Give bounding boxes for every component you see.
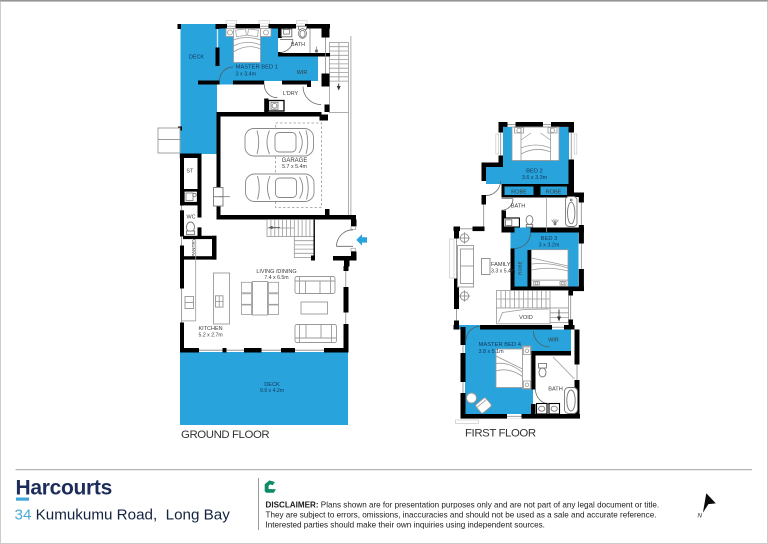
svg-text:L'DRY: L'DRY xyxy=(283,91,299,97)
svg-text:FAMILY: FAMILY xyxy=(491,262,511,268)
svg-text:BED 2: BED 2 xyxy=(526,168,543,174)
svg-text:ROBE: ROBE xyxy=(511,189,527,195)
svg-text:7.4 x 6.5m: 7.4 x 6.5m xyxy=(264,275,288,281)
svg-text:ROBE: ROBE xyxy=(546,189,562,195)
svg-text:3 x 3.4m: 3 x 3.4m xyxy=(236,71,257,77)
svg-text:N: N xyxy=(698,513,703,520)
svg-text:DECK: DECK xyxy=(189,55,204,61)
svg-text:3.8 x 5.1m: 3.8 x 5.1m xyxy=(479,349,505,355)
svg-text:GROUND FLOOR: GROUND FLOOR xyxy=(181,429,269,441)
svg-text:FIRST FLOOR: FIRST FLOOR xyxy=(465,428,536,440)
svg-text:3 x 3.2m: 3 x 3.2m xyxy=(539,242,560,248)
svg-text:5.2 x 2.7m: 5.2 x 2.7m xyxy=(199,332,223,338)
svg-text:BATH: BATH xyxy=(548,386,563,392)
svg-text:3.3 x 5.4m: 3.3 x 5.4m xyxy=(491,269,515,275)
svg-text:PANTRY: PANTRY xyxy=(191,237,197,257)
svg-text:MASTER BED 4: MASTER BED 4 xyxy=(479,342,522,348)
svg-text:BED 3: BED 3 xyxy=(541,236,558,242)
svg-text:They are subject to errors, om: They are subject to errors, omissions, i… xyxy=(266,511,657,520)
svg-text:ST: ST xyxy=(186,169,194,175)
svg-text:BATH: BATH xyxy=(291,42,305,48)
svg-text:DECK: DECK xyxy=(264,382,280,388)
svg-text:KITCHEN: KITCHEN xyxy=(199,326,223,332)
svg-text:ROBE: ROBE xyxy=(517,261,523,275)
svg-text:DISCLAIMER: Plans shown are fo: DISCLAIMER: Plans shown are for presenta… xyxy=(266,501,660,510)
svg-text:WIR: WIR xyxy=(548,338,559,344)
svg-text:BATH: BATH xyxy=(511,204,526,210)
svg-text:WIR: WIR xyxy=(297,70,308,76)
svg-text:MASTER BED 1: MASTER BED 1 xyxy=(236,65,279,71)
svg-text:34 Kumukumu Road, Long Bay: 34 Kumukumu Road, Long Bay xyxy=(15,507,231,524)
svg-text:Interested parties should make: Interested parties should make their own… xyxy=(266,521,545,530)
svg-text:3.6 x 3.3m: 3.6 x 3.3m xyxy=(522,175,548,181)
svg-text:Harcourts: Harcourts xyxy=(16,477,113,500)
svg-text:WC: WC xyxy=(187,215,196,221)
svg-text:VOID: VOID xyxy=(519,315,533,321)
svg-text:GARAGE: GARAGE xyxy=(282,158,308,164)
svg-text:5.7 x 5.4m: 5.7 x 5.4m xyxy=(282,164,307,170)
svg-text:9.9 x 4.2m: 9.9 x 4.2m xyxy=(260,388,284,394)
svg-text:LIVING /DINING: LIVING /DINING xyxy=(256,269,296,275)
